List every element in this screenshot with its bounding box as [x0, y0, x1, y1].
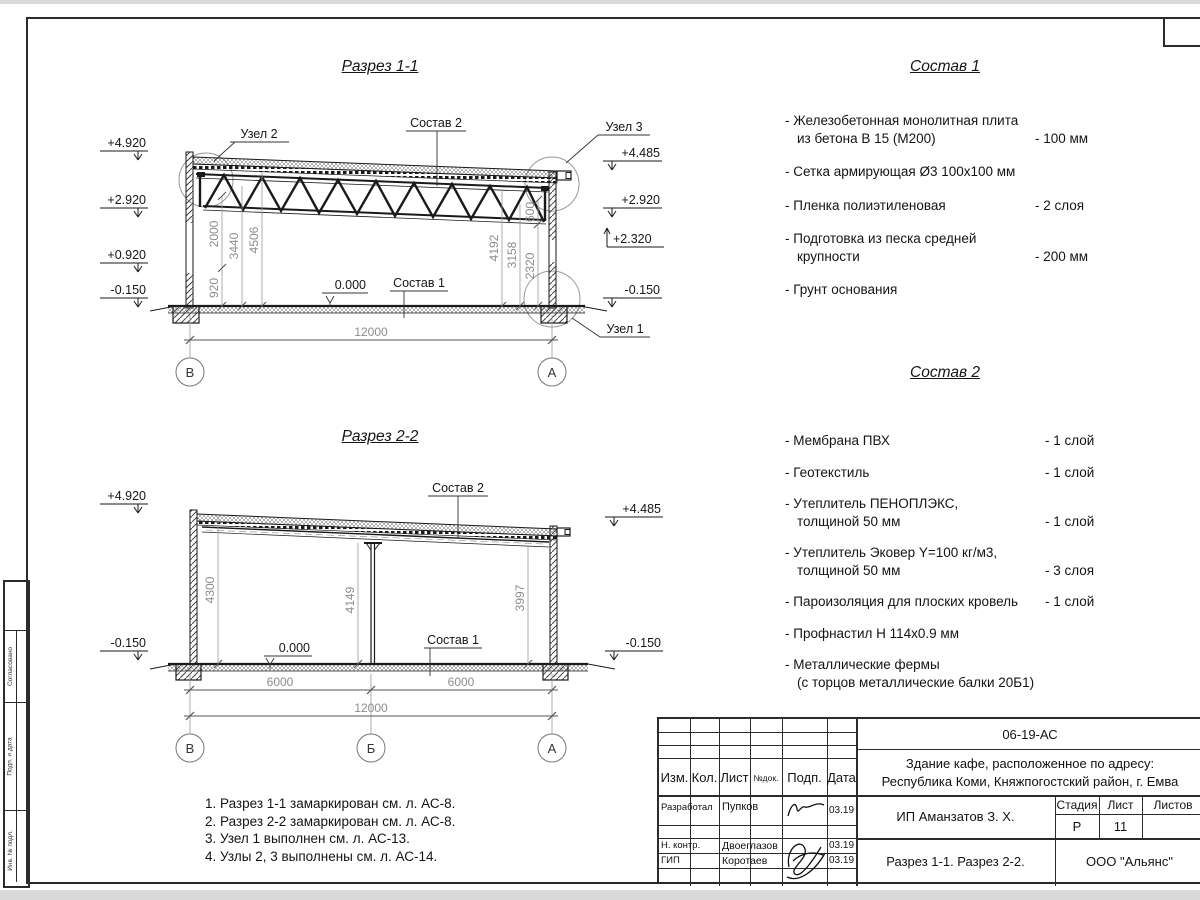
list-item: - Металлические фермы (с торцов металлич… [785, 656, 1115, 691]
elev-left-1: +4.920 [107, 136, 146, 150]
elev-right-4: -0.150 [625, 283, 660, 297]
item-value: - 3 слоя [1045, 562, 1094, 580]
label-uzel1: Узел 1 [606, 322, 643, 336]
list-item: - Грунт основания [785, 281, 1115, 299]
label-zero: 0.000 [279, 641, 310, 655]
tb-company: ООО "Альянс" [1055, 838, 1200, 884]
dim-3440: 3440 [227, 232, 241, 259]
sostav1-list: - Железобетонная монолитная плита из бет… [785, 112, 1115, 315]
dim-3158: 3158 [505, 241, 519, 268]
sostav1-title: Состав 1 [845, 58, 1045, 76]
note-line: 4. Узлы 2, 3 выполнены см. л. АС-14. [205, 848, 455, 866]
title-block: Изм. Кол. Лист №док. Подп. Дата Разработ… [657, 717, 1200, 884]
dim-4149: 4149 [343, 586, 357, 613]
axis-bubbles [176, 358, 566, 386]
dim-920: 920 [207, 278, 221, 298]
notes-list: 1. Разрез 1-1 замаркирован см. л. АС-8. … [205, 795, 455, 865]
list-item: - Подготовка из песка средней крупности-… [785, 230, 1115, 265]
dim-12000: 12000 [354, 701, 388, 715]
item-name: - Мембрана ПВХ [785, 432, 1045, 450]
dim-2320: 2320 [523, 252, 537, 279]
item-name: - Металлические фермы (с торцов металлич… [785, 656, 1045, 691]
label-uzel2: Узел 2 [240, 127, 277, 141]
tb-name-3: Коротаев [722, 855, 767, 867]
axis-v: В [186, 741, 195, 756]
item-name: - Грунт основания [785, 281, 1035, 299]
item-value: - 1 слой [1045, 464, 1094, 482]
label-sostav2-ref: Состав 2 [432, 481, 484, 495]
list-item: - Мембрана ПВХ- 1 слой [785, 432, 1115, 450]
list-item: - Сетка армирующая Ø3 100х100 мм [785, 163, 1115, 181]
item-name: - Геотекстиль [785, 464, 1045, 482]
signature-pupkov [784, 798, 827, 823]
label-sostav2-ref: Состав 2 [410, 116, 462, 130]
label-sostav1-ref: Состав 1 [427, 633, 479, 647]
label-sostav1-ref: Состав 1 [393, 276, 445, 290]
tb-project-line2: Республика Коми, Княжпогостский район, г… [882, 773, 1179, 791]
tb-role-3: ГИП [661, 855, 680, 866]
item-value: - 1 слой [1045, 432, 1094, 450]
drawing-sheet: { "section1": { "title": "Разрез 1-1", "… [0, 0, 1200, 900]
item-name: - Железобетонная монолитная плита из бет… [785, 112, 1035, 147]
page-edge-top [0, 0, 1200, 4]
item-value: - 100 мм [1035, 130, 1088, 148]
elev-right-3: +2.320 [613, 232, 652, 246]
sostav2-list: - Мембрана ПВХ- 1 слой - Геотекстиль- 1 … [785, 432, 1115, 705]
roof [197, 514, 570, 547]
side-stamp-line [5, 810, 28, 811]
sostav2-title: Состав 2 [845, 364, 1045, 382]
list-item: - Профнастил Н 114х0.9 мм [785, 625, 1115, 643]
dim-4192: 4192 [487, 234, 501, 261]
label-zero: 0.000 [335, 278, 366, 292]
dim-4300: 4300 [203, 576, 217, 603]
axis-b: Б [367, 741, 376, 756]
list-item: - Железобетонная монолитная плита из бет… [785, 112, 1115, 147]
axis-a: А [548, 741, 557, 756]
tb-col-data: Дата [827, 760, 856, 795]
tb-doc-number: 06-19-АС [856, 719, 1200, 749]
dim-3997: 3997 [513, 584, 527, 611]
elev-right-1: +4.485 [622, 502, 661, 516]
roof [193, 157, 571, 183]
elev-right-2: +2.920 [621, 193, 660, 207]
tb-sheet-title: Разрез 1-1. Разрез 2-2. [856, 838, 1055, 884]
tb-sheet-header: Лист [1099, 795, 1142, 814]
item-name: - Подготовка из песка средней крупности [785, 230, 1035, 265]
dim-6000-2: 6000 [448, 675, 475, 689]
item-name: - Утеплитель Эковер Y=100 кг/м3, толщино… [785, 544, 1045, 579]
dim-4506: 4506 [247, 226, 261, 253]
tb-line [659, 758, 856, 759]
item-value: - 1 слой [1045, 513, 1094, 531]
tb-col-podp: Подп. [782, 760, 827, 795]
tb-col-ndok: №док. [750, 760, 782, 795]
item-name: - Пленка полиэтиленовая [785, 197, 1035, 215]
item-value: - 2 слоя [1035, 197, 1084, 215]
floor [150, 306, 607, 323]
signature-korotaev [777, 833, 833, 883]
list-item: - Геотекстиль- 1 слой [785, 464, 1115, 482]
list-item: - Утеплитель ПЕНОПЛЭКС, толщиной 50 мм- … [785, 495, 1115, 530]
page-edge-bottom [0, 890, 1200, 900]
tb-project-line1: Здание кафе, расположенное по адресу: [906, 755, 1154, 773]
tb-col-list: Лист [719, 760, 750, 795]
tb-sheet-value: 11 [1099, 814, 1142, 838]
tb-stage-value: Р [1055, 814, 1099, 838]
tb-name-1: Пупков [722, 801, 758, 813]
elev-left-4: -0.150 [111, 283, 146, 297]
note-line: 1. Разрез 1-1 замаркирован см. л. АС-8. [205, 795, 455, 813]
elev-left-3: +0.920 [107, 248, 146, 262]
list-item: - Утеплитель Эковер Y=100 кг/м3, толщино… [785, 544, 1115, 579]
dim-12000: 12000 [354, 325, 388, 339]
tb-sheets-header: Листов [1142, 795, 1200, 814]
tb-line [659, 825, 856, 826]
tb-sheets-value [1142, 814, 1200, 838]
tb-project: Здание кафе, расположенное по адресу: Ре… [856, 750, 1200, 795]
axis-a: А [548, 365, 557, 380]
tb-stage-header: Стадия [1055, 795, 1099, 814]
tb-col-kol: Кол. [690, 760, 719, 795]
item-value: - 200 мм [1035, 248, 1088, 266]
item-name: - Утеплитель ПЕНОПЛЭКС, толщиной 50 мм [785, 495, 1045, 530]
dim-2000: 2000 [207, 220, 221, 247]
floor [150, 664, 615, 680]
list-item: - Пароизоляция для плоских кровель- 1 сл… [785, 593, 1115, 611]
tb-line [659, 745, 856, 746]
frame-corner-box [1163, 17, 1200, 47]
tb-client: ИП Аманзатов З. Х. [856, 795, 1055, 838]
axis-v: В [186, 365, 195, 380]
tb-line [659, 732, 856, 733]
elev-right-1: +4.485 [621, 146, 660, 160]
side-stamp-label: Инв. № подл. [7, 830, 14, 871]
dim-6000-1: 6000 [267, 675, 294, 689]
tb-name-2: Двоеглазов [722, 840, 778, 852]
item-value: - 1 слой [1045, 593, 1094, 611]
dim-600: 600 [523, 202, 537, 222]
list-item: - Пленка полиэтиленовая- 2 слоя [785, 197, 1115, 215]
tb-role-1: Разработал [661, 802, 713, 813]
elev-right-2: -0.150 [626, 636, 661, 650]
elev-left-1: +4.920 [107, 489, 146, 503]
section-2-2-drawing: 4300 4149 3997 6000 6000 12000 В Б А +4.… [0, 420, 760, 775]
elev-left-2: -0.150 [111, 636, 146, 650]
tb-date-1: 03.19 [827, 795, 856, 825]
item-name: - Профнастил Н 114х0.9 мм [785, 625, 1045, 643]
item-name: - Пароизоляция для плоских кровель [785, 593, 1045, 611]
item-name: - Сетка армирующая Ø3 100х100 мм [785, 163, 1035, 181]
tb-role-2: Н. контр. [661, 840, 700, 851]
tb-col-izm: Изм. [659, 760, 690, 795]
label-uzel3: Узел 3 [605, 120, 642, 134]
note-line: 3. Узел 1 выполнен см. л. АС-13. [205, 830, 455, 848]
section-1-1-drawing: 2000 920 3440 4506 600 4192 3158 2320 12… [0, 30, 760, 410]
elev-left-2: +2.920 [107, 193, 146, 207]
note-line: 2. Разрез 2-2 замаркирован см. л. АС-8. [205, 813, 455, 831]
